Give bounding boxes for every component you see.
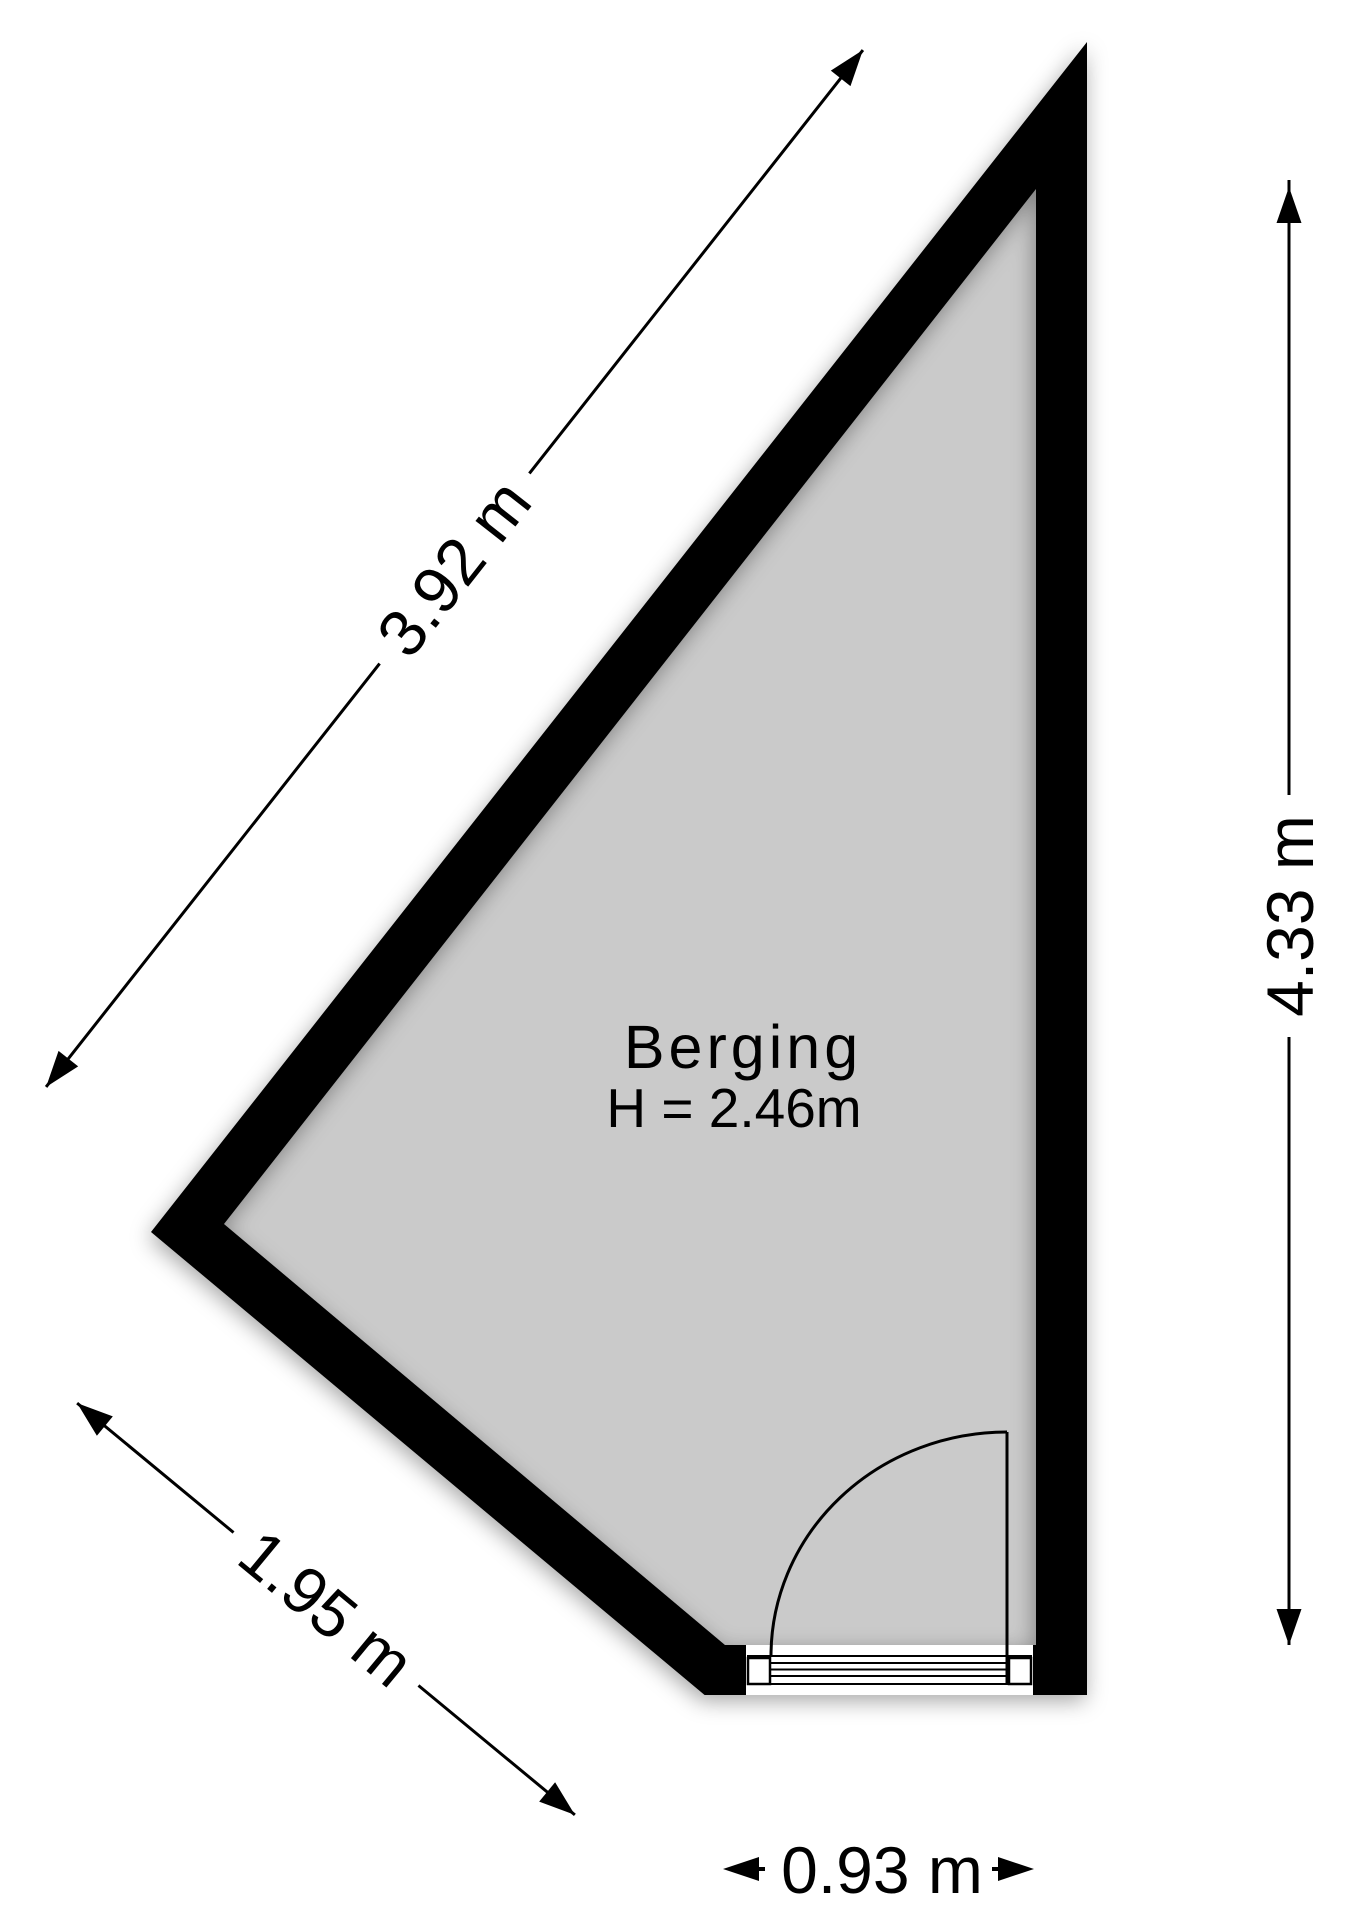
svg-text:H = 2.46m: H = 2.46m: [606, 1077, 861, 1139]
svg-text:3.92 m: 3.92 m: [362, 466, 545, 670]
svg-text:0.93 m: 0.93 m: [781, 1833, 983, 1907]
svg-text:4.33 m: 4.33 m: [1253, 815, 1327, 1017]
svg-text:1.95 m: 1.95 m: [225, 1515, 428, 1701]
svg-text:Berging: Berging: [624, 1013, 862, 1081]
